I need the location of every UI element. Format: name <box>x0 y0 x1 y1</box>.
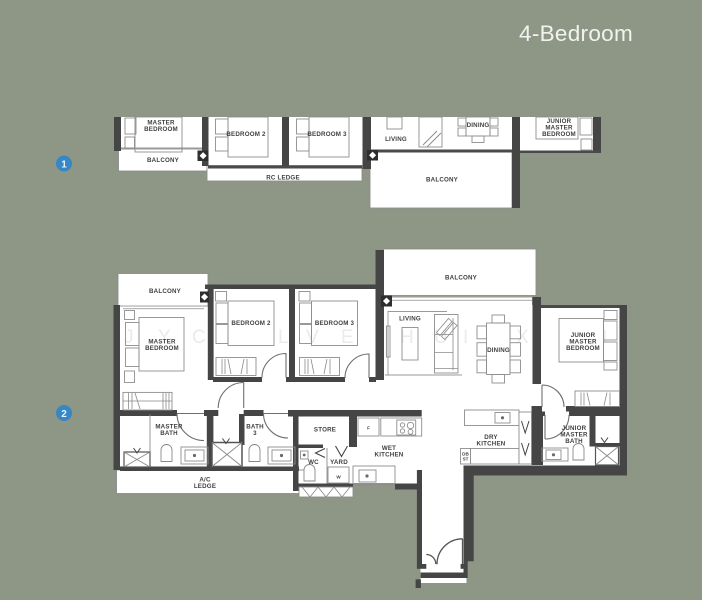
svg-text:E: E <box>341 327 354 348</box>
svg-text:LIVING: LIVING <box>385 136 407 143</box>
svg-text:U: U <box>434 327 448 348</box>
svg-text:X: X <box>516 327 529 348</box>
svg-text:BEDROOM 3: BEDROOM 3 <box>307 131 347 138</box>
svg-text:BALCONY: BALCONY <box>147 157 180 164</box>
svg-text:KITCHEN: KITCHEN <box>375 452 404 459</box>
svg-text:I: I <box>463 327 468 348</box>
svg-text:BEDROOM: BEDROOM <box>144 126 178 133</box>
svg-text:WC: WC <box>308 459 319 466</box>
svg-text:BATH: BATH <box>565 438 583 445</box>
svg-text:W: W <box>336 475 341 480</box>
svg-text:BEDROOM 2: BEDROOM 2 <box>231 320 271 327</box>
svg-text:STORE: STORE <box>314 427 336 434</box>
svg-text:LEDGE: LEDGE <box>194 483 216 490</box>
svg-text:RC LEDGE: RC LEDGE <box>266 175 300 182</box>
svg-text:V: V <box>306 327 319 348</box>
svg-text:BALCONY: BALCONY <box>426 177 459 184</box>
svg-text:BEDROOM: BEDROOM <box>566 345 600 352</box>
svg-text:L: L <box>278 327 289 348</box>
svg-text:BEDROOM: BEDROOM <box>145 345 179 352</box>
svg-text:4-Bedroom: 4-Bedroom <box>519 21 633 46</box>
svg-text:BATH: BATH <box>160 430 178 437</box>
svg-text:2: 2 <box>61 409 67 420</box>
svg-text:BALCONY: BALCONY <box>445 275 478 282</box>
svg-text:BEDROOM 3: BEDROOM 3 <box>315 320 355 327</box>
svg-text:ST: ST <box>463 457 469 462</box>
svg-text:3: 3 <box>253 430 257 437</box>
svg-text:BALCONY: BALCONY <box>149 288 182 295</box>
svg-text:C: C <box>192 327 206 348</box>
svg-text:F: F <box>367 426 370 431</box>
svg-text:YARD: YARD <box>330 459 348 466</box>
svg-text:LIVING: LIVING <box>399 316 421 323</box>
svg-text:DINING: DINING <box>487 347 510 354</box>
svg-text:DINING: DINING <box>467 122 490 129</box>
svg-text:KITCHEN: KITCHEN <box>477 441 506 448</box>
svg-text:BEDROOM: BEDROOM <box>542 131 576 138</box>
svg-text:1: 1 <box>61 160 67 171</box>
svg-text:BEDROOM 2: BEDROOM 2 <box>226 131 266 138</box>
svg-text:I: I <box>602 327 607 348</box>
